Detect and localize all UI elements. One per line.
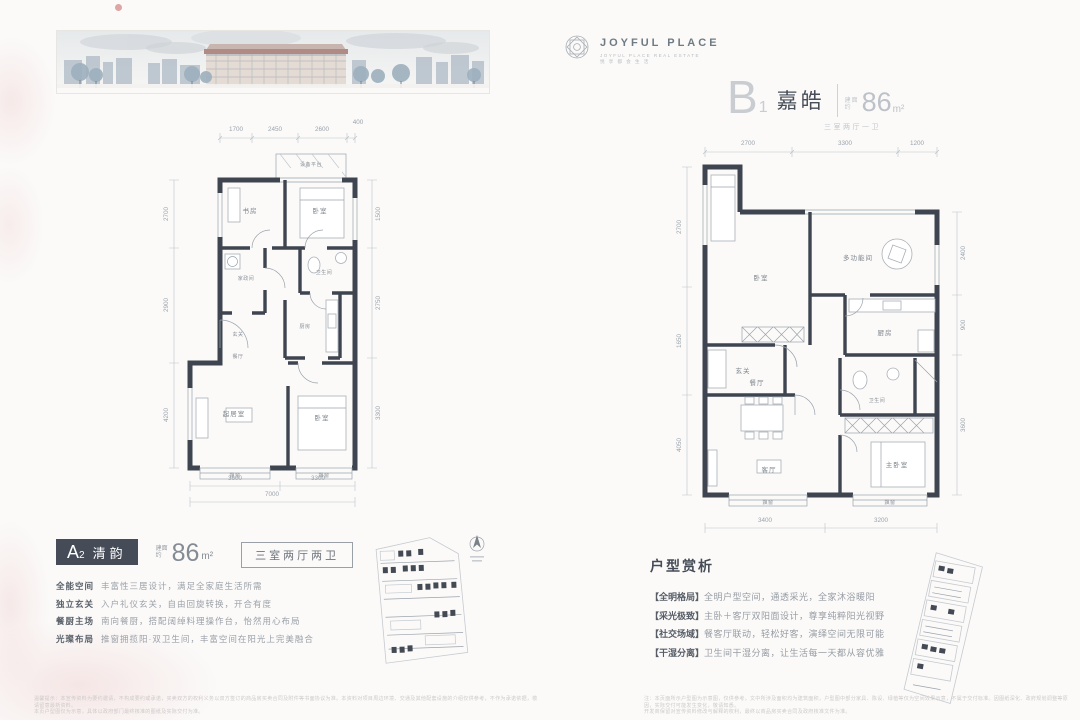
cityscape-art [56,30,490,94]
svg-text:卫生间: 卫生间 [869,397,886,404]
svg-text:厨房: 厨房 [299,323,310,330]
analysis-row: 【采光极致】主卧＋客厅双阳面设计，尊享纯粹阳光视野 [650,611,885,621]
logo-flower-icon [563,33,591,61]
a-dims-right: 1500 2750 3300 [367,180,382,468]
feature-row: 独立玄关入户礼仪玄关，自由回旋转换，开合有度 [56,600,314,609]
svg-text:卧室: 卧室 [754,273,769,282]
unit-a-features: 全能空间丰富性三居设计，满足全家庭生活所需 独立玄关入户礼仪玄关，自由回旋转换，… [56,582,314,652]
svg-text:飘窗: 飘窗 [229,472,240,479]
svg-text:2750: 2750 [375,296,382,311]
svg-text:3300: 3300 [375,406,382,421]
svg-text:餐厅: 餐厅 [232,353,243,360]
a-map-buildings [382,548,459,653]
b-doors [775,298,863,452]
svg-text:2700: 2700 [741,140,756,147]
unit-b-area: 86 [862,89,892,116]
svg-text:1200: 1200 [910,140,925,147]
b-furniture [708,175,937,487]
unit-b-area-prefix: 建面 约 [845,98,859,112]
main-building [204,44,348,86]
footnote-left: 温馨提示：本宣传资料为要约邀请，不构成要约或承诺，买卖双方的权利义务以双方签订的… [34,696,539,716]
svg-text:1500: 1500 [375,207,382,222]
compass-icon [470,535,484,562]
unit-a-area: 86 [172,541,200,566]
feature-row: 全能空间丰富性三居设计，满足全家庭生活所需 [56,582,314,591]
a-dims-top: 1700 2450 2600 400 [218,119,364,143]
svg-text:2700: 2700 [163,207,170,222]
svg-text:客厅: 客厅 [762,465,777,474]
svg-text:3300: 3300 [838,140,853,147]
svg-text:7000: 7000 [265,491,280,498]
svg-text:设备平台: 设备平台 [300,161,322,168]
svg-text:3600: 3600 [960,418,967,433]
b-dims-top: 2700 3300 1200 [703,140,939,157]
watercolor-accent [0,36,56,166]
unit-a-area-unit: m² [201,551,213,562]
svg-text:4050: 4050 [676,438,683,453]
svg-text:4200: 4200 [163,408,170,423]
brand-name: JOYFUL PLACE [600,37,720,49]
unit-a-layout: 三室两厅两卫 [241,542,353,568]
analysis-row: 【社交场域】餐客厅联动，轻松好客，演绎空间无限可能 [650,629,885,639]
svg-text:厨房: 厨房 [878,328,893,337]
red-dot-mark [115,4,122,11]
feature-row: 光璨布局推窗拥揽阳·双卫生间，丰富空间在阳光上完美融合 [56,635,314,644]
svg-text:2600: 2600 [315,126,330,133]
unit-a-name: 清韵 [93,543,127,562]
svg-text:卫生间: 卫生间 [316,269,333,276]
unit-b-name: 嘉皓 [777,85,825,115]
unit-a-letter-sub: 2 [79,550,85,561]
b-dims-right: 2400 900 3600 [952,212,967,495]
unit-b-area-unit: m² [893,104,905,115]
svg-text:书房: 书房 [243,206,258,215]
unit-a-letter: A [67,543,79,561]
master-wardrobe-hatch [845,418,933,433]
unit-b-header: B 1 嘉皓 建面 约 86 m² 三室两厅一卫 [727,74,904,132]
svg-text:900: 900 [960,319,967,330]
svg-text:400: 400 [353,119,364,126]
wardrobe-hatch [742,327,804,342]
svg-text:飘窗: 飘窗 [318,472,329,479]
svg-text:玄关: 玄关 [736,366,751,375]
svg-text:卧室: 卧室 [315,413,330,422]
svg-text:飘窗: 飘窗 [762,499,773,506]
unit-a-floorplan: 1700 2450 2600 400 3600 3300 7000 2700 2… [100,108,400,533]
unit-b-analysis: 户型赏析 【全明格局】全明户型空间，通透采光，全家沐浴暖阳 【采光极致】主卧＋客… [650,556,885,666]
svg-text:飘窗: 飘窗 [884,499,895,506]
watercolor-accent [0,165,44,285]
b-windows [701,185,941,285]
a-dims-left: 2700 2900 4200 [163,180,179,468]
svg-text:2450: 2450 [268,126,283,133]
a-doors [220,230,326,383]
svg-text:2900: 2900 [163,298,170,313]
brochure-page: JOYFUL PLACE JOYFUL PLACE REAL ESTATE 悦 … [0,0,1080,720]
unit-b-sitemap [893,550,993,715]
svg-text:多功能间: 多功能间 [843,253,873,262]
svg-text:玄关: 玄关 [232,331,243,338]
unit-b-floorplan: 2700 3300 1200 3400 3200 2700 1650 4050 … [645,130,985,555]
svg-text:3200: 3200 [874,517,889,524]
svg-text:起居室: 起居室 [223,409,246,418]
svg-text:3400: 3400 [758,517,773,524]
svg-text:1650: 1650 [676,334,683,349]
svg-text:卧室: 卧室 [313,206,328,215]
watercolor-accent [0,520,50,690]
footnote-right: 注：本页面所示户型图为示意图，仅供参考。文中所涉及面积均为建筑面积，户型图中部分… [644,696,1068,716]
banner-illustration [56,30,490,94]
b-dims-bottom: 3400 3200 [705,517,937,533]
divider [837,84,838,117]
analysis-title: 户型赏析 [650,556,885,576]
unit-a-sitemap [360,528,490,681]
feature-row: 餐厨主场南向餐厨，搭配阔绰料理操作台，怡然用心布局 [56,617,314,626]
svg-text:2400: 2400 [960,246,967,261]
brand-tagline-2: 悦 享 都 会 生 活 [600,59,720,65]
analysis-row: 【干湿分离】卫生间干湿分离，让生活每一天都从容优雅 [650,648,885,658]
b-map-strip [903,551,984,705]
svg-text:1700: 1700 [229,126,244,133]
unit-b-letter-sub: 1 [759,99,768,117]
analysis-row: 【全明格局】全明户型空间，通透采光，全家沐浴暖阳 [650,592,885,602]
brand-logo: JOYFUL PLACE JOYFUL PLACE REAL ESTATE 悦 … [563,33,720,65]
unit-a-badge: A 2 清韵 [56,539,138,565]
unit-b-letter: B [727,74,758,120]
svg-text:2700: 2700 [676,220,683,235]
unit-a-area-prefix: 建面 约 [156,546,168,560]
unit-a-header: A 2 清韵 建面 约 86 m² 三室两厅两卫 [56,539,353,568]
svg-text:餐厅: 餐厅 [750,378,765,387]
a-dims-bottom: 3600 3300 7000 [190,475,355,507]
a-map-outline [376,536,468,663]
svg-text:主卧室: 主卧室 [886,460,909,469]
svg-text:家政间: 家政间 [238,275,255,282]
b-dims-left: 2700 1650 4050 [676,167,692,495]
